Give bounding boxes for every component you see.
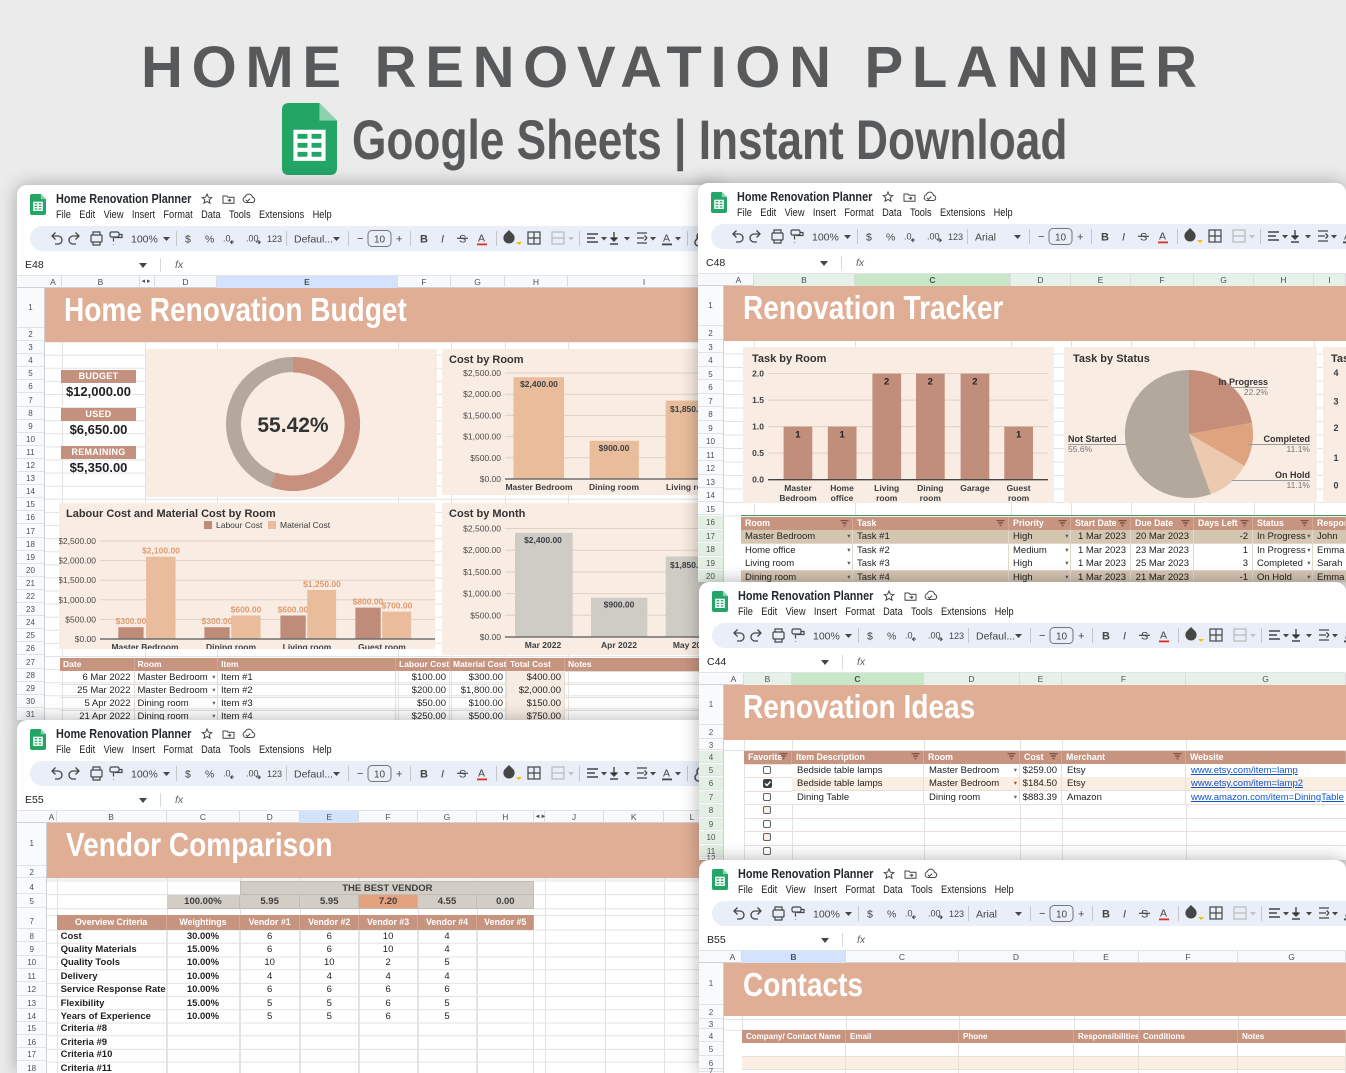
svg-text:Material Cost: Material Cost — [280, 520, 331, 530]
svg-text:I: I — [441, 769, 444, 781]
svg-text:Living ro: Living ro — [666, 482, 702, 492]
svg-text:.0: .0 — [223, 769, 231, 779]
svg-text:10: 10 — [1056, 632, 1068, 643]
svg-text:Dining room: Dining room — [205, 642, 255, 649]
svg-text:Defaul...: Defaul... — [294, 234, 333, 246]
svg-text:Garage: Garage — [960, 483, 990, 493]
svg-text:+: + — [1078, 631, 1084, 643]
svg-text:10: 10 — [374, 770, 386, 781]
svg-text:Mar 2022: Mar 2022 — [525, 640, 562, 650]
svg-text:$2,400.00: $2,400.00 — [524, 535, 562, 545]
svg-text:.0: .0 — [905, 631, 913, 641]
svg-text:B: B — [1102, 909, 1110, 921]
svg-text:B: B — [1101, 232, 1109, 244]
svg-text:$300.00: $300.00 — [115, 616, 146, 626]
svg-text:10: 10 — [1056, 910, 1068, 921]
svg-text:$2,000.00: $2,000.00 — [59, 556, 96, 566]
svg-text:123: 123 — [267, 234, 282, 244]
svg-text:$1,000.00: $1,000.00 — [463, 432, 501, 442]
svg-text:Labour Cost: Labour Cost — [216, 520, 263, 530]
svg-text:room: room — [920, 493, 942, 503]
svg-text:$1,500.00: $1,500.00 — [463, 567, 501, 577]
svg-text:%: % — [887, 909, 896, 921]
svg-text:Task by Room: Task by Room — [752, 353, 827, 365]
svg-text:100%: 100% — [131, 769, 158, 781]
svg-text:$: $ — [185, 234, 191, 246]
svg-text:%: % — [886, 232, 895, 244]
svg-text:A: A — [478, 233, 485, 245]
svg-text:−: − — [357, 233, 363, 245]
svg-text:$: $ — [185, 769, 191, 781]
svg-text:123: 123 — [267, 769, 282, 779]
svg-text:$: $ — [867, 631, 873, 643]
svg-text:office: office — [831, 493, 854, 503]
svg-text:−: − — [1038, 231, 1044, 243]
svg-text:0.0: 0.0 — [752, 475, 764, 485]
svg-text:Not Started: Not Started — [1068, 434, 1117, 444]
svg-text:2: 2 — [884, 377, 889, 388]
svg-text:Master Bedroom: Master Bedroom — [111, 642, 179, 649]
svg-text:3: 3 — [1333, 397, 1338, 407]
svg-text:$2,000.00: $2,000.00 — [463, 545, 501, 555]
svg-text:Guest: Guest — [1007, 483, 1031, 493]
svg-text:A: A — [1160, 908, 1167, 920]
svg-text:room: room — [1008, 493, 1030, 503]
svg-text:S: S — [1141, 909, 1148, 921]
svg-text:2: 2 — [928, 377, 933, 388]
svg-text:Home: Home — [830, 483, 854, 493]
svg-text:Tas: Tas — [1331, 353, 1346, 365]
svg-text:Living room: Living room — [282, 642, 331, 649]
svg-text:$0.00: $0.00 — [74, 634, 96, 644]
svg-text:0.5: 0.5 — [752, 448, 764, 458]
svg-text:S: S — [1141, 631, 1148, 643]
svg-text:B: B — [1102, 631, 1110, 643]
svg-text:S: S — [459, 234, 466, 246]
svg-text:11.1%: 11.1% — [1287, 444, 1311, 454]
svg-text:Completed: Completed — [1263, 434, 1310, 444]
svg-text:S: S — [1140, 232, 1147, 244]
svg-text:1: 1 — [839, 430, 845, 441]
svg-text:Cost by Month: Cost by Month — [449, 508, 526, 520]
svg-text:Bedroom: Bedroom — [779, 493, 817, 503]
svg-text:Defaul...: Defaul... — [976, 631, 1015, 643]
svg-text:$1,250.00: $1,250.00 — [303, 579, 341, 589]
svg-text:100%: 100% — [813, 909, 840, 921]
svg-text:I: I — [1123, 909, 1126, 921]
svg-text:$2,000.00: $2,000.00 — [463, 389, 501, 399]
svg-text:$0.00: $0.00 — [480, 474, 502, 484]
svg-text:$2,400.00: $2,400.00 — [520, 379, 558, 389]
svg-text:1: 1 — [1333, 453, 1338, 463]
svg-text:+: + — [1077, 232, 1083, 244]
svg-text:%: % — [887, 631, 896, 643]
svg-text:2.0: 2.0 — [752, 369, 764, 379]
svg-text:In Progress: In Progress — [1218, 377, 1268, 387]
svg-text:.0: .0 — [223, 234, 231, 244]
svg-text:+: + — [1078, 909, 1084, 921]
svg-text:11.1%: 11.1% — [1287, 480, 1311, 490]
svg-text:$500.00: $500.00 — [470, 453, 501, 463]
svg-text:$2,500.00: $2,500.00 — [59, 536, 96, 546]
svg-text:B: B — [420, 234, 428, 246]
svg-text:$500.00: $500.00 — [65, 614, 96, 624]
svg-text:May 20: May 20 — [673, 640, 702, 650]
svg-text:2: 2 — [972, 377, 977, 388]
svg-text:1.0: 1.0 — [752, 422, 764, 432]
svg-text:$600.00: $600.00 — [277, 605, 308, 615]
svg-text:4: 4 — [1333, 368, 1338, 378]
svg-text:10: 10 — [374, 235, 386, 246]
svg-text:I: I — [1123, 631, 1126, 643]
svg-text:2: 2 — [1333, 423, 1338, 433]
svg-text:A: A — [663, 768, 670, 780]
svg-text:22.2%: 22.2% — [1244, 387, 1269, 397]
svg-text:$0.00: $0.00 — [480, 632, 502, 642]
svg-text:$800.00: $800.00 — [352, 597, 383, 607]
svg-text:100%: 100% — [813, 631, 840, 643]
svg-text:I: I — [1122, 232, 1125, 244]
svg-text:$300.00: $300.00 — [201, 616, 232, 626]
svg-text:Cost by Room: Cost by Room — [449, 354, 524, 366]
svg-text:−: − — [1039, 908, 1045, 920]
svg-text:1: 1 — [795, 430, 801, 441]
svg-text:$900.00: $900.00 — [599, 443, 630, 453]
svg-text:I: I — [441, 234, 444, 246]
svg-text:room: room — [876, 493, 898, 503]
svg-text:0: 0 — [1333, 481, 1338, 491]
svg-text:+: + — [396, 769, 402, 781]
svg-text:Master Bedroom: Master Bedroom — [505, 482, 573, 492]
svg-text:−: − — [357, 768, 363, 780]
svg-text:$2,500.00: $2,500.00 — [463, 524, 501, 534]
svg-text:1.5: 1.5 — [752, 395, 764, 405]
svg-text:$1,000.00: $1,000.00 — [463, 589, 501, 599]
svg-text:B: B — [420, 769, 428, 781]
svg-text:Task by Status: Task by Status — [1073, 353, 1150, 365]
svg-text:$: $ — [866, 232, 872, 244]
svg-text:Dining: Dining — [917, 483, 943, 493]
svg-text:10: 10 — [1055, 233, 1067, 244]
svg-text:$1,500.00: $1,500.00 — [59, 575, 96, 585]
svg-text:Apr 2022: Apr 2022 — [601, 640, 637, 650]
svg-text:Living: Living — [874, 483, 899, 493]
svg-text:100%: 100% — [131, 234, 158, 246]
svg-text:.0: .0 — [904, 232, 912, 242]
svg-text:1: 1 — [1016, 430, 1022, 441]
svg-text:$2,500.00: $2,500.00 — [463, 368, 501, 378]
svg-text:A: A — [663, 233, 670, 245]
svg-text:A: A — [1160, 630, 1167, 642]
svg-text:123: 123 — [948, 232, 963, 242]
svg-text:$600.00: $600.00 — [230, 605, 261, 615]
svg-text:$1,500.00: $1,500.00 — [463, 410, 501, 420]
svg-text:%: % — [205, 769, 214, 781]
svg-text:55.6%: 55.6% — [1068, 444, 1093, 454]
svg-text:A: A — [1159, 231, 1166, 243]
svg-text:123: 123 — [949, 909, 964, 919]
svg-text:Master: Master — [784, 483, 812, 493]
svg-text:Arial: Arial — [975, 232, 996, 244]
svg-text:Arial: Arial — [976, 909, 997, 921]
svg-text:Guest room: Guest room — [358, 642, 406, 649]
svg-text:%: % — [205, 234, 214, 246]
svg-text:On Hold: On Hold — [1275, 470, 1310, 480]
svg-text:+: + — [396, 234, 402, 246]
svg-text:−: − — [1039, 630, 1045, 642]
svg-text:A: A — [478, 768, 485, 780]
svg-text:$500.00: $500.00 — [470, 610, 501, 620]
svg-text:Dining room: Dining room — [589, 482, 639, 492]
svg-text:Defaul...: Defaul... — [294, 769, 333, 781]
svg-text:$900.00: $900.00 — [604, 600, 635, 610]
svg-text:55.42%: 55.42% — [257, 414, 329, 437]
svg-text:123: 123 — [949, 631, 964, 641]
svg-text:$2,100.00: $2,100.00 — [142, 546, 180, 556]
svg-text:$: $ — [867, 909, 873, 921]
svg-text:100%: 100% — [812, 232, 839, 244]
svg-text:$700.00: $700.00 — [381, 601, 412, 611]
svg-text:.0: .0 — [905, 909, 913, 919]
svg-text:Labour Cost and Material Cost: Labour Cost and Material Cost by Room — [66, 508, 276, 520]
svg-text:S: S — [459, 769, 466, 781]
svg-text:$1,000.00: $1,000.00 — [59, 595, 96, 605]
